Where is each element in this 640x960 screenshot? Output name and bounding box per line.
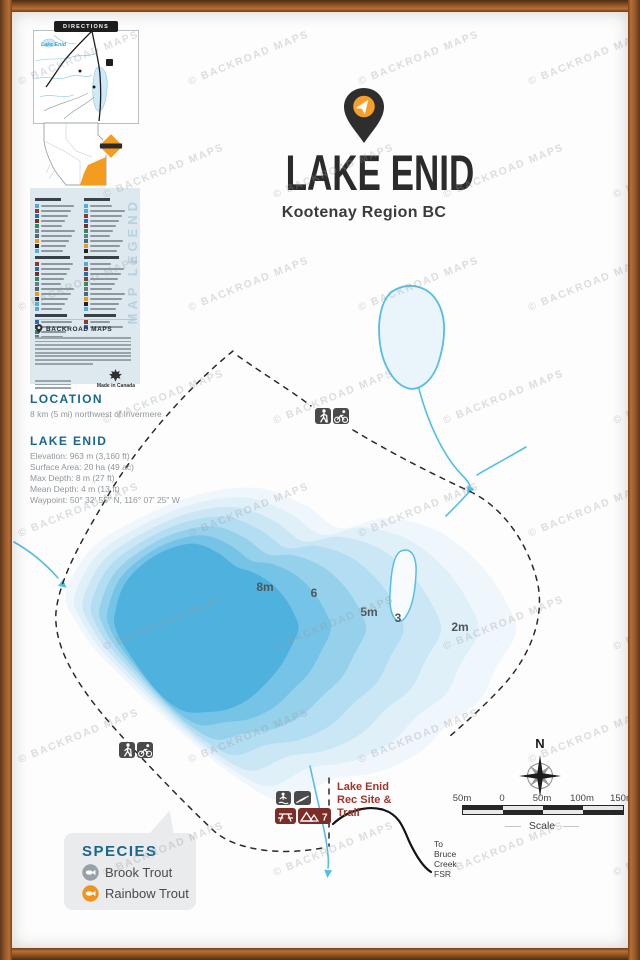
legend-copyright-lines (35, 380, 71, 388)
stat-max-depth: Max Depth: 8 m (27 ft) (30, 473, 240, 484)
hiking-icon (315, 408, 331, 424)
brook-trout-icon (82, 864, 99, 881)
legend-item-columns (35, 196, 127, 339)
scale-caption: Scale (456, 820, 628, 832)
pond (379, 286, 444, 389)
map-legend-panel: MAP LEGEND BACKROAD MAPS Made in Canada (30, 188, 140, 384)
made-in-canada-label: Made in Canada (97, 383, 135, 389)
scale-tick-label: 50m (453, 793, 471, 804)
bc-locator-map (36, 121, 136, 191)
location-text: 8 km (5 mi) northwest of Invermere (30, 409, 240, 419)
depth-label: 8m (256, 580, 273, 594)
legend-footer-bottom: Made in Canada (35, 369, 135, 389)
biking-icon (137, 742, 153, 758)
map-pin-logo-icon (341, 86, 387, 144)
legend-footer-brand: BACKROAD MAPS (35, 324, 135, 334)
rec-site-label-line: Lake Enid (337, 781, 391, 794)
campsite-count: 7 (322, 813, 328, 824)
legend-fine-print (35, 337, 135, 365)
lake-info-heading: LAKE ENID (30, 434, 240, 448)
inset-town-dot (93, 86, 96, 89)
species-name: Brook Trout (105, 865, 172, 880)
campground-icon: 7 (298, 808, 331, 824)
stat-waypoint: Waypoint: 50° 32' 55" N, 116° 07' 25" W (30, 495, 240, 506)
scale-bar: 50m 0 50m 100m 150m Scale (456, 793, 628, 804)
scale-bar-labels: 50m 0 50m 100m 150m (456, 793, 628, 804)
boat-launch-icon (294, 791, 311, 805)
scale-tick-label: 50m (533, 793, 551, 804)
road-destination-label: To Bruce Creek FSR (434, 839, 457, 879)
road-label-line: To (434, 839, 457, 849)
directions-inset-panel: DIRECTIONS Lake Enid (33, 30, 139, 124)
species-row: Rainbow Trout (82, 885, 196, 902)
stat-surface-area: Surface Area: 20 ha (49 ac) (30, 462, 240, 473)
flow-arrow-south (323, 870, 332, 879)
compass-rose-icon (519, 755, 561, 797)
legend-column-left (35, 196, 78, 339)
creek-pond-outlet (419, 389, 470, 486)
inset-minor-roads (44, 93, 94, 119)
depth-label: 5m (360, 605, 377, 619)
biking-icon (333, 408, 349, 424)
trail-north-link (238, 356, 311, 406)
rainbow-trout-icon (82, 885, 99, 902)
location-heading: LOCATION (30, 392, 240, 406)
rec-site-label: Lake Enid Rec Site & Trail (337, 781, 391, 820)
water-access-icon (276, 791, 291, 805)
directions-inset-map: Lake Enid (34, 31, 136, 121)
scale-caption-text: Scale (529, 820, 555, 832)
map-legend-title: MAP LEGEND (125, 198, 140, 324)
depth-label: 6 (311, 586, 318, 600)
scale-tick-label: 100m (570, 793, 594, 804)
location-info-block: LOCATION 8 km (5 mi) northwest of Inverm… (30, 392, 240, 506)
legend-column-right (84, 196, 127, 339)
road-label-line: Creek (434, 859, 457, 869)
legend-footer-title: BACKROAD MAPS (46, 326, 112, 333)
hiking-icon (119, 742, 135, 758)
picnic-area-icon (275, 808, 296, 824)
compass-north-label: N (535, 736, 544, 751)
scale-tick-label: 150m (610, 793, 634, 804)
directions-title: DIRECTIONS (63, 24, 109, 30)
rec-site-label-line: Trail (337, 807, 391, 820)
creek-to-lake (446, 492, 469, 516)
flow-arrow-northeast (464, 485, 475, 496)
rec-site-label-line: Rec Site & (337, 794, 391, 807)
creek-branch (477, 447, 526, 475)
map-page: 8m 6 5m 3 2m N DI (0, 0, 640, 960)
made-in-canada: Made in Canada (97, 369, 135, 389)
legend-footer: BACKROAD MAPS Made in Canada (35, 319, 135, 389)
road-label-line: Bruce (434, 849, 457, 859)
page-subtitle: Kootenay Region BC (252, 204, 476, 222)
species-row: Brook Trout (82, 864, 196, 881)
map-title-block: LAKE ENID Kootenay Region BC (252, 86, 476, 222)
inset-lake-enid-label: Lake Enid (41, 42, 67, 48)
creek-west-inflow (14, 542, 58, 578)
species-panel-tail (140, 811, 174, 840)
stat-mean-depth: Mean Depth: 4 m (13 ft) (30, 484, 240, 495)
depth-label: 2m (451, 620, 468, 634)
page-title: LAKE ENID (286, 152, 443, 195)
maple-leaf-icon (109, 369, 122, 382)
depth-label: 3 (395, 611, 402, 625)
species-name: Rainbow Trout (105, 886, 189, 901)
species-title: SPECIES (82, 843, 196, 860)
stat-elevation: Elevation: 963 m (3,160 ft) (30, 451, 240, 462)
species-panel: SPECIES Brook Trout Rainbow Trout (64, 833, 196, 910)
scale-tick-label: 0 (499, 793, 504, 804)
inset-town-dot (79, 70, 82, 73)
inset-highway-shield (106, 59, 113, 66)
road-label-line: FSR (434, 869, 457, 879)
brand-pin-icon (35, 324, 43, 334)
scale-bar-checker (462, 805, 624, 815)
